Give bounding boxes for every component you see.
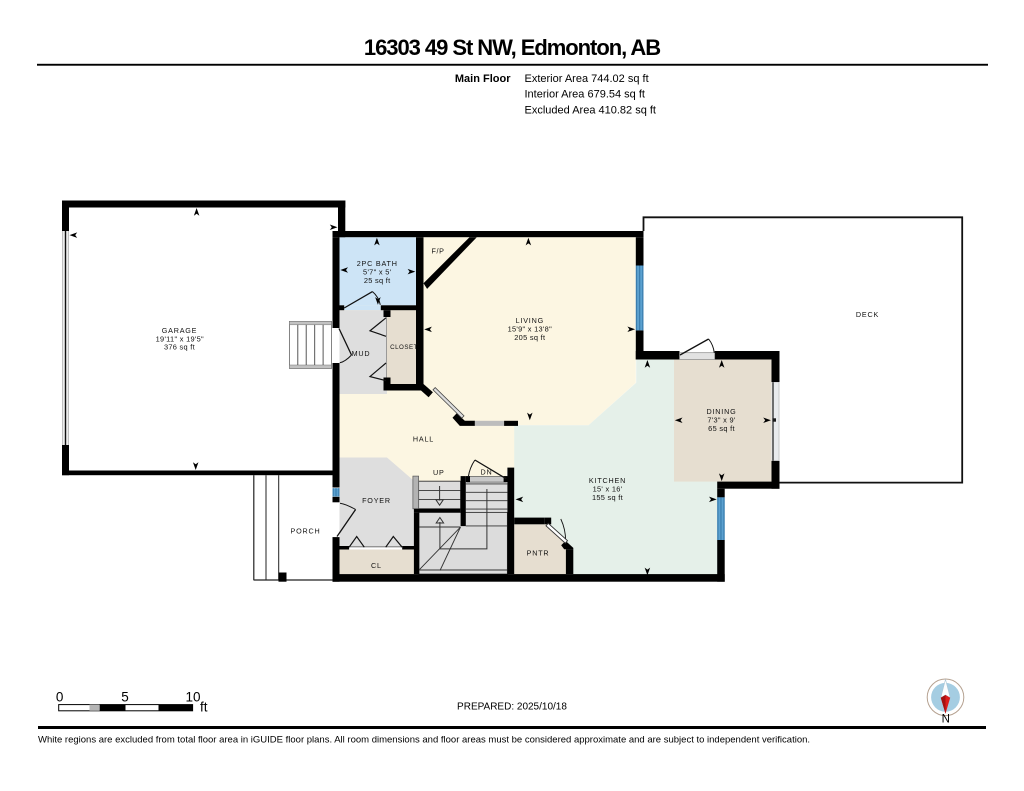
svg-text:PREPARED: 2025/10/18: PREPARED: 2025/10/18 [457, 702, 567, 713]
svg-text:DECK: DECK [856, 310, 879, 319]
svg-text:25 sq ft: 25 sq ft [364, 276, 391, 285]
svg-text:Excluded Area 410.82 sq ft: Excluded Area 410.82 sq ft [525, 105, 656, 117]
svg-text:205 sq ft: 205 sq ft [514, 333, 545, 342]
svg-text:CLOSET: CLOSET [390, 344, 418, 351]
svg-text:ft: ft [200, 700, 208, 715]
svg-text:MUD: MUD [352, 349, 371, 358]
svg-text:16303 49 St NW, Edmonton, AB: 16303 49 St NW, Edmonton, AB [364, 35, 660, 60]
svg-text:FOYER: FOYER [362, 496, 391, 505]
svg-text:Interior Area 679.54 sq ft: Interior Area 679.54 sq ft [525, 89, 645, 101]
svg-text:PNTR: PNTR [527, 549, 550, 558]
svg-text:HALL: HALL [413, 435, 434, 444]
svg-text:CL: CL [371, 561, 382, 570]
svg-text:376 sq ft: 376 sq ft [164, 343, 195, 352]
svg-text:Main Floor: Main Floor [455, 73, 511, 85]
svg-text:PORCH: PORCH [291, 527, 321, 536]
svg-text:White regions are excluded fro: White regions are excluded from total fl… [38, 735, 810, 746]
svg-text:5: 5 [121, 690, 129, 705]
svg-text:N: N [942, 713, 950, 725]
svg-text:10: 10 [185, 690, 200, 705]
svg-text:UP: UP [433, 468, 445, 477]
svg-text:F/P: F/P [432, 247, 445, 256]
svg-text:0: 0 [56, 690, 64, 705]
svg-text:155 sq ft: 155 sq ft [592, 493, 623, 502]
svg-text:Exterior Area 744.02 sq ft: Exterior Area 744.02 sq ft [525, 73, 649, 85]
svg-text:65 sq ft: 65 sq ft [708, 424, 735, 433]
